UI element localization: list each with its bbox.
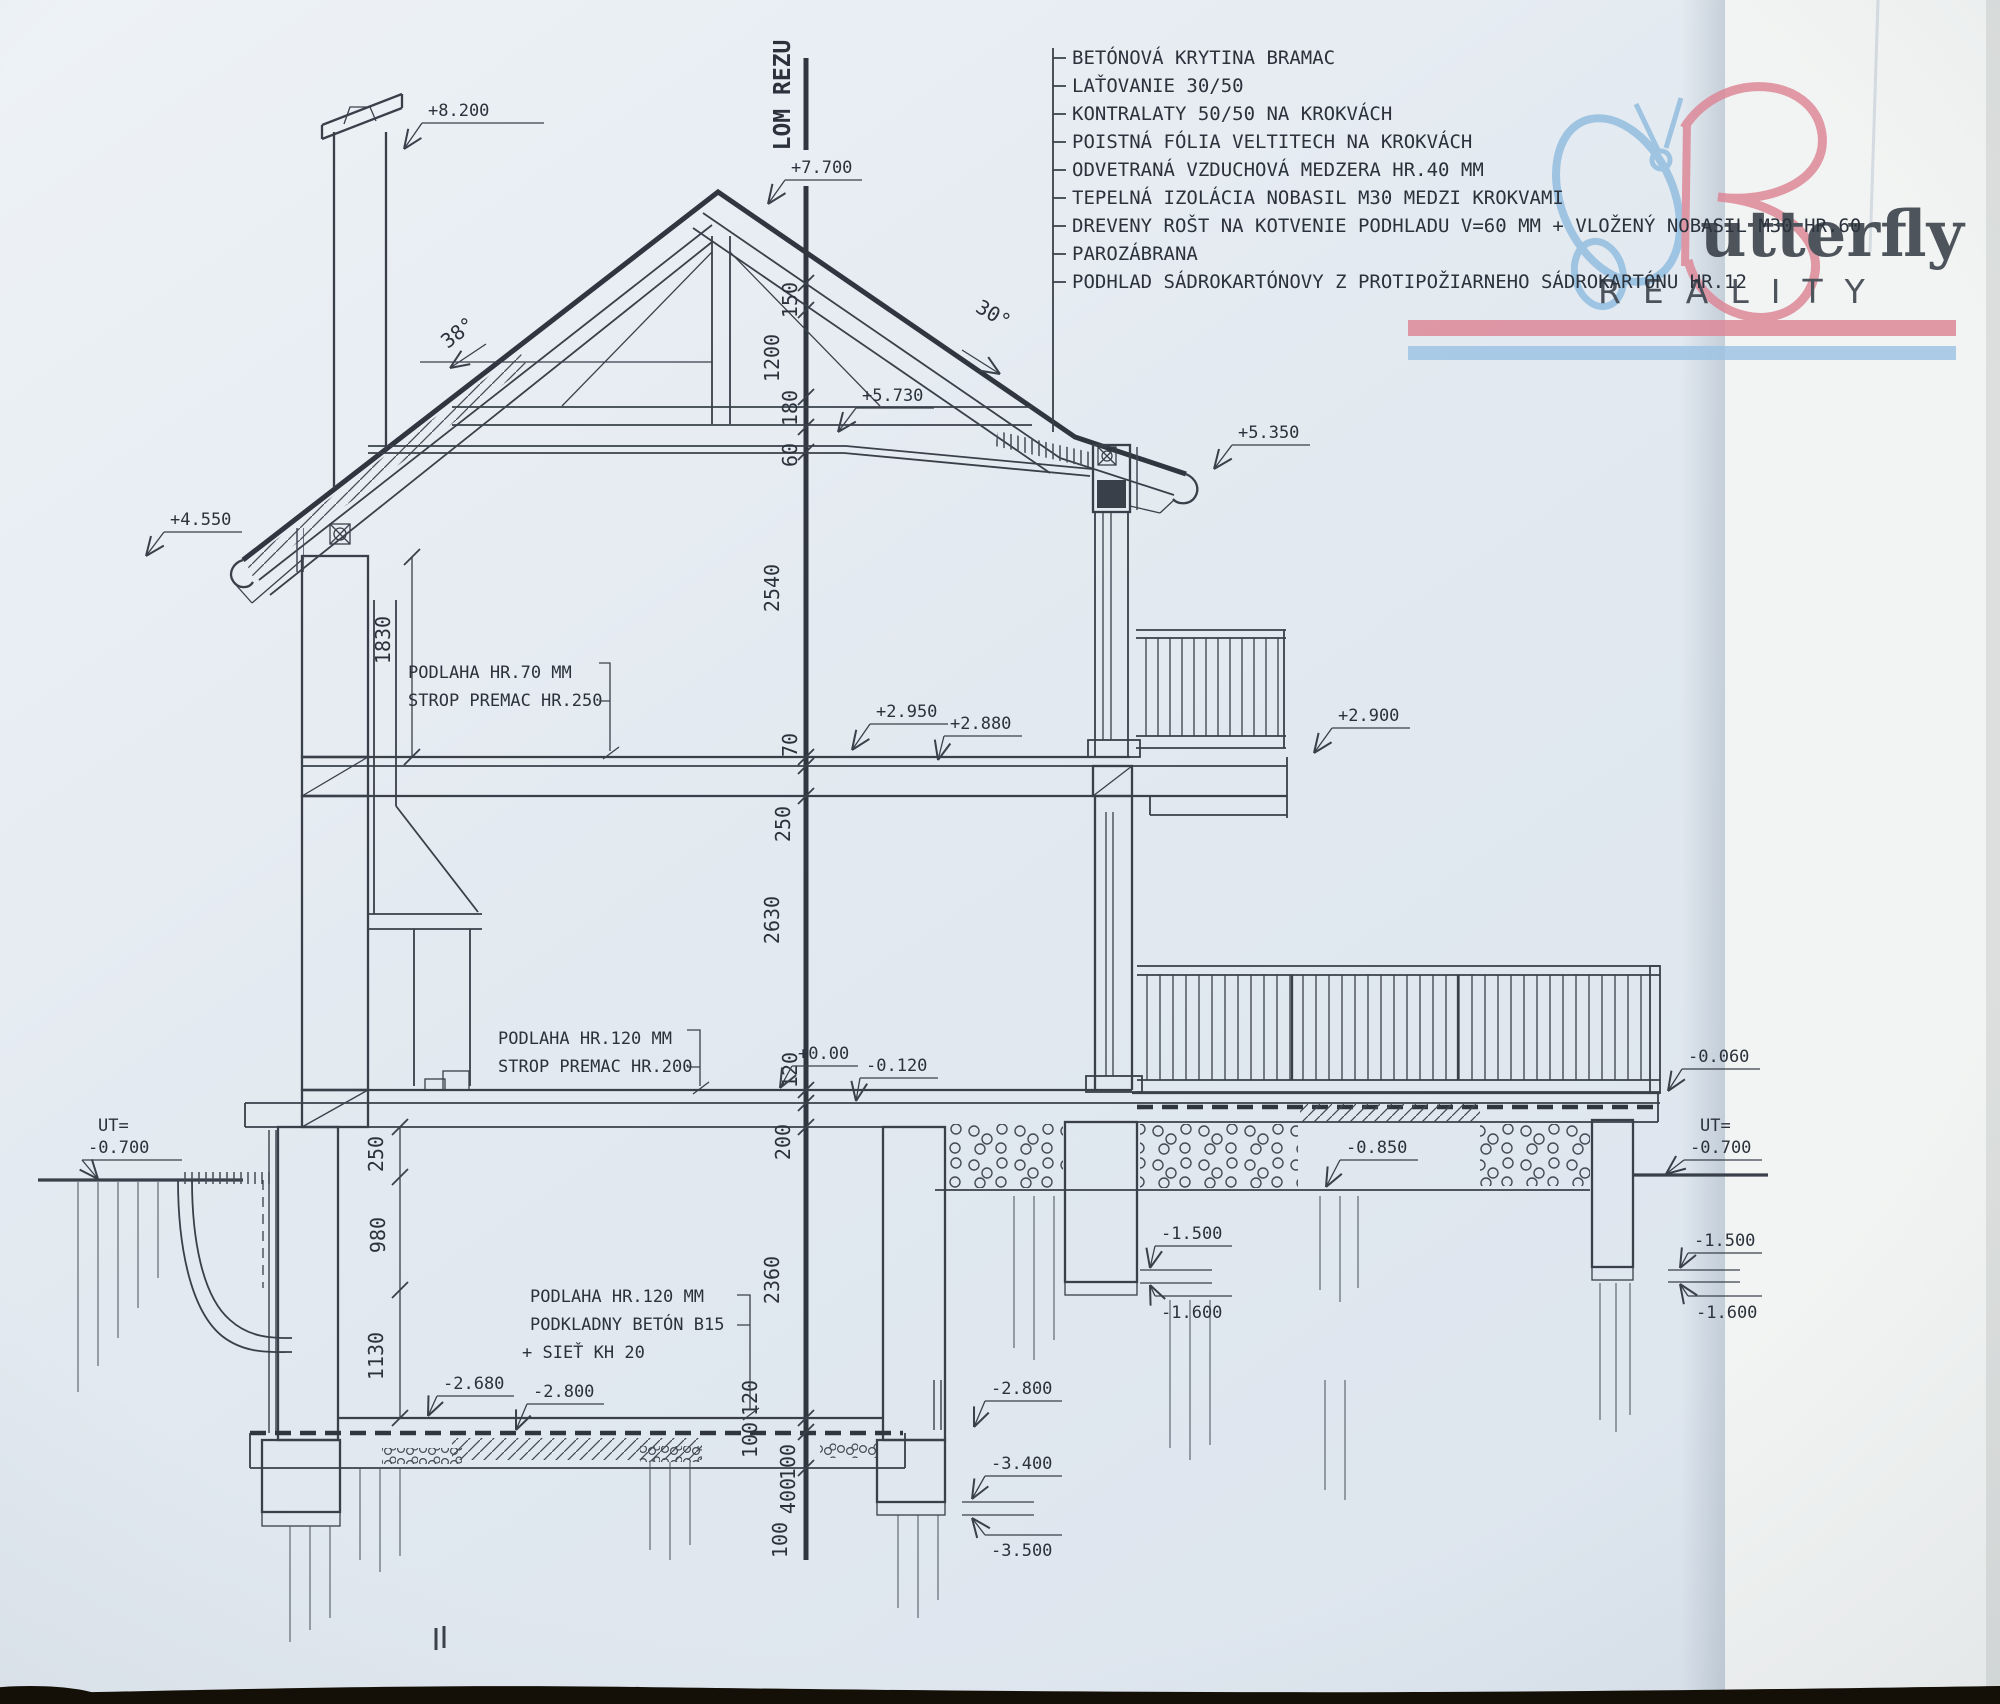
section-label: LOM REZU <box>770 40 796 151</box>
svg-text:+2.950: +2.950 <box>876 702 937 722</box>
svg-text:-0.700: -0.700 <box>1690 1138 1751 1158</box>
roof-layer-item: LAŤOVANIE 30/50 <box>1072 74 1244 97</box>
dim-2630: 2630 <box>760 896 784 944</box>
dim-150: 150 <box>778 282 802 318</box>
terrace-gravel <box>948 1124 1063 1188</box>
roof-layer-item: POISTNÁ FÓLIA VELTITECH NA KROKVÁCH <box>1072 129 1472 153</box>
dim-2540: 2540 <box>760 564 784 612</box>
terrace-gravel <box>1480 1124 1590 1186</box>
svg-text:-0.120: -0.120 <box>866 1056 927 1076</box>
dim-250: 250 <box>771 806 795 842</box>
svg-text:-1.600: -1.600 <box>1161 1303 1222 1323</box>
svg-text:UT=: UT= <box>98 1116 129 1136</box>
dim-100a: 100 <box>738 1422 762 1458</box>
terrace-gravel <box>1140 1124 1298 1188</box>
svg-text:+4.550: +4.550 <box>170 510 231 530</box>
roof-layer-item: KONTRALATY 50/50 NA KROKVÁCH <box>1072 102 1392 125</box>
svg-text:-0.700: -0.700 <box>88 1138 149 1158</box>
dim-1830: 1830 <box>371 616 395 664</box>
svg-text:-0.060: -0.060 <box>1688 1047 1749 1067</box>
note-line: STROP PREMAC HR.200 <box>498 1057 692 1077</box>
svg-text:+2.900: +2.900 <box>1338 706 1399 726</box>
dim-70: 70 <box>778 733 802 757</box>
svg-text:UT=: UT= <box>1700 1116 1731 1136</box>
svg-text:+5.350: +5.350 <box>1238 423 1299 443</box>
note-line: + SIEŤ KH 20 <box>522 1341 645 1363</box>
photo-of-drawing: utterfly REALITY LOM REZU <box>0 0 2000 1704</box>
roof-layer-item: PODHLAD SÁDROKARTÓNOVY Z PROTIPOŽIARNEHO… <box>1072 269 1747 293</box>
svg-text:+5.730: +5.730 <box>862 386 923 406</box>
blueprint-canvas: utterfly REALITY LOM REZU <box>0 0 2000 1704</box>
underslab-gravel <box>382 1448 462 1464</box>
dim-180: 180 <box>778 390 802 426</box>
svg-text:+2.880: +2.880 <box>950 714 1011 734</box>
svg-text:-1.600: -1.600 <box>1696 1303 1757 1323</box>
note-line: STROP PREMAC HR.250 <box>408 691 602 711</box>
roof-layer-item: BETÓNOVÁ KRYTINA BRAMAC <box>1072 45 1335 69</box>
dim-100b: 100 <box>776 1444 800 1480</box>
dim-250L: 250 <box>364 1136 388 1172</box>
svg-text:-1.500: -1.500 <box>1161 1224 1222 1244</box>
svg-text:+7.700: +7.700 <box>791 158 852 178</box>
lightshaft-grate <box>183 1172 273 1184</box>
roof-layer-item: TEPELNÁ IZOLÁCIA NOBASIL M30 MEDZI KROKV… <box>1072 186 1564 209</box>
svg-text:+8.200: +8.200 <box>428 101 489 121</box>
dim-980: 980 <box>366 1217 390 1253</box>
svg-text:-2.680: -2.680 <box>443 1374 504 1394</box>
note-line: PODLAHA HR.120 MM <box>498 1029 672 1049</box>
svg-text:-2.800: -2.800 <box>991 1379 1052 1399</box>
svg-text:+0.00: +0.00 <box>798 1044 849 1064</box>
svg-text:-0.850: -0.850 <box>1346 1138 1407 1158</box>
underslab-gravel <box>820 1442 878 1458</box>
svg-text:-2.800: -2.800 <box>533 1382 594 1402</box>
note-line: PODLAHA HR.120 MM <box>530 1287 704 1307</box>
svg-text:-3.400: -3.400 <box>991 1454 1052 1474</box>
dim-1200: 1200 <box>760 334 784 382</box>
note-line: PODKLADNY BETÓN B15 <box>530 1313 724 1335</box>
lintel-block <box>1097 480 1126 508</box>
roof-layer-item: DREVENY ROŠT NA KOTVENIE PODHLADU V=60 M… <box>1072 213 1861 237</box>
dim-200: 200 <box>771 1124 795 1160</box>
dim-1130: 1130 <box>364 1332 388 1380</box>
logo-bar-pink <box>1408 320 1956 336</box>
dim-2360: 2360 <box>760 1256 784 1304</box>
roof-layer-item: PAROZÁBRANA <box>1072 242 1198 265</box>
roof-layer-item: ODVETRANÁ VZDUCHOVÁ MEDZERA HR.40 MM <box>1072 158 1484 181</box>
note-line: PODLAHA HR.70 MM <box>408 663 572 683</box>
basement-insulation-right <box>929 1380 945 1430</box>
svg-text:-1.500: -1.500 <box>1694 1231 1755 1251</box>
dim-400: 400 <box>776 1478 800 1514</box>
dim-100c: 100 <box>768 1522 792 1558</box>
terrace-slab-hatch <box>1300 1103 1480 1122</box>
svg-text:-3.500: -3.500 <box>991 1541 1052 1561</box>
dim-60: 60 <box>778 443 802 467</box>
logo-bar-blue <box>1408 346 1956 360</box>
underslab-gravel <box>640 1446 702 1462</box>
